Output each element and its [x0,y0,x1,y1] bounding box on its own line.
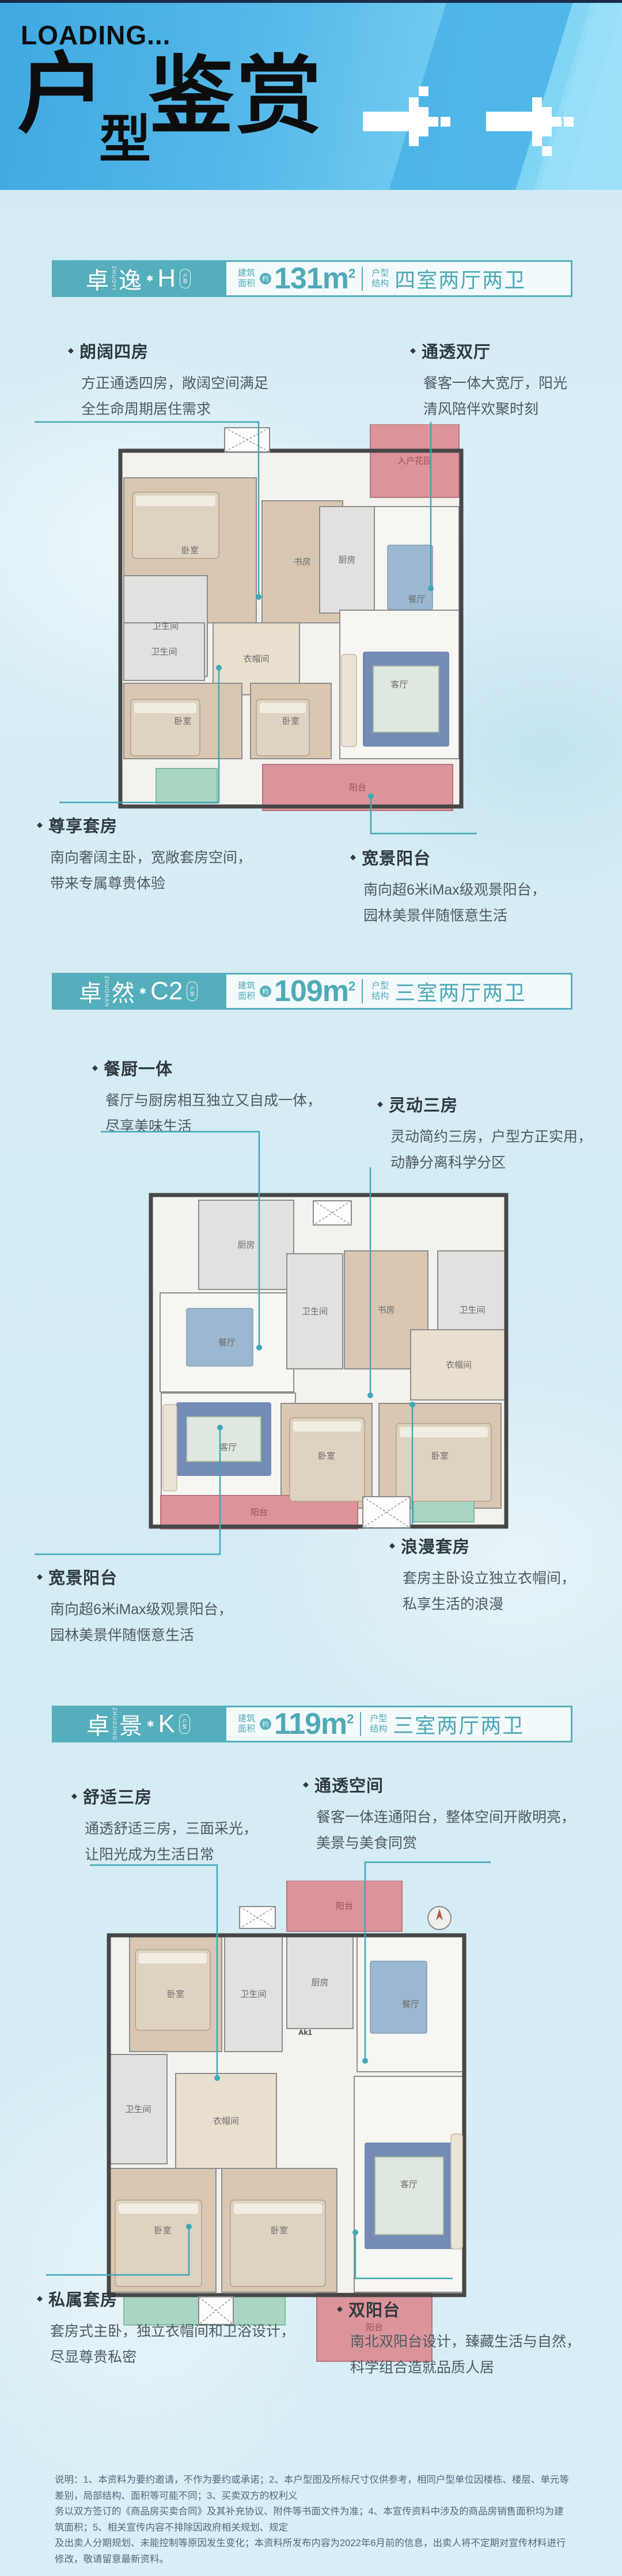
area-superscript: 2 [347,1712,353,1726]
room-label-bath-b: 卫生间 [151,647,177,657]
feature-title: 灵动三房 [389,1092,458,1116]
diamond-bullet-icon: ◆ [37,2294,43,2303]
room-label-study: 书房 [294,557,311,567]
feature-desc: 南向超6米iMax级观景阳台， 园林美景伴随惬意生活 [50,1597,233,1649]
feature-title: 双阳台 [348,2297,400,2321]
room-label-bath-b: 卫生间 [459,1306,485,1315]
room-label-dining: 餐厅 [218,1338,236,1348]
area-number: 131m [274,262,348,295]
plan-sub-label: Ak1 [298,2028,312,2037]
room-label-bath-a: 卫生间 [153,622,179,631]
area-label: 建筑 面积 [238,268,255,289]
section-header-zhuoran-c2: 卓 ZHUORAN 然 ✱ C2 户型 建筑 面积 约 109m2 户型 结构 … [52,973,572,1010]
diamond-bullet-icon: ◆ [389,1541,395,1550]
room-label-bedroom-c: 卧室 [271,2226,288,2236]
feature-title: 餐厨一体 [104,1056,173,1080]
area-superscript: 2 [348,267,355,281]
spec-divider [362,267,363,291]
diamond-bullet-icon: ◆ [337,2304,343,2314]
feature-desc: 餐客一体连通阳台，整体空间开敞明亮， 美景与美食同赏 [316,1805,575,1856]
feature-callout: ◆舒适三房 通透舒适三房，三面采光， 让阳光成为生活日常 [71,1784,257,1868]
room-label-study: 书房 [377,1306,395,1315]
area-label: 建筑 面积 [238,981,255,1002]
area-number: 119m [274,1707,347,1741]
star-separator-icon: ✱ [139,986,147,996]
room-label-dining: 餐厅 [408,595,425,604]
pillow-decor [134,703,196,713]
room-label-bath-b: 卫生间 [125,2105,151,2114]
feature-title: 尊享套房 [48,813,117,837]
room-label-closet: 衣帽间 [213,2117,239,2126]
sofa-decor [451,2134,462,2249]
brand-box: 卓 ZHUORAN 然 ✱ C2 户型 [52,973,225,1010]
feature-desc: 餐厅与厨房相互独立又自成一体， 尽享美味生活 [105,1088,321,1140]
brand-pinyin: ZHUOYI [111,266,117,291]
room-label-kitchen: 厨房 [338,555,355,565]
spec-divider [360,1712,361,1736]
header-banner: LOADING... 户 型 鉴 赏 [0,0,622,190]
brand-char: 然 [112,975,135,1008]
room-label-bath-a: 卫生间 [240,1989,266,1999]
approx-badge: 约 [260,273,271,284]
feature-callout: ◆浪漫套房 套房主卧设立独立衣帽间， 私享生活的浪漫 [389,1534,575,1618]
room-label-living: 客厅 [400,2180,418,2190]
legal-disclaimer: 说明：1、本资料为要约邀请，不作为要约或承诺；2、本户型图及所标尺寸仅供参考，相… [55,2472,573,2567]
diamond-bullet-icon: ◆ [303,1780,309,1789]
page-title-char: 户 [17,51,105,138]
structure-value: 三室两厅两卫 [395,976,526,1006]
dining-table-decor [370,1961,427,2033]
diamond-bullet-icon: ◆ [37,820,43,830]
diamond-bullet-icon: ◆ [410,346,416,355]
diamond-bullet-icon: ◆ [68,346,74,355]
floor-plan-zhuoran-c2: 厨房餐厅卫生间书房卫生间衣帽间客厅卧室卧室阳台 [149,1179,509,1535]
section-header-zhuojing-k: 卓 ZHUOJING 景 ✱ K 户型 建筑 面积 约 119m2 户型 结构 … [52,1706,572,1742]
structure-label: 户型 结构 [371,981,389,1002]
feature-desc: 南向超6米iMax级观景阳台， 园林美景伴随惬意生活 [363,877,546,929]
coffee-table-decor [373,666,439,732]
approx-badge: 约 [260,1718,271,1730]
brand-box: 卓 ZHUOYI 逸 ✱ H 户型 [52,260,225,297]
brand-box: 卓 ZHUOJING 景 ✱ K 户型 [52,1706,225,1742]
floor-plan-svg: 厨房餐厅卫生间书房卫生间衣帽间客厅卧室卧室阳台 [149,1179,509,1532]
feature-callout: ◆尊享套房 南向奢阔主卧，宽敞套房空间， 带来专属尊贵体验 [37,813,252,897]
structure-label: 户型 结构 [370,1714,387,1734]
feature-callout: ◆通透双厅 餐客一体大宽厅，阳光 清风陪伴欢聚时刻 [410,338,567,423]
diamond-bullet-icon: ◆ [37,1572,43,1581]
brand-pinyin: ZHUOJING [112,1707,117,1741]
brand-pinyin: ZHUORAN [104,976,110,1007]
room-label-bedroom-a: 卧室 [167,1989,184,1999]
room-label-bath-a: 卫生间 [302,1307,328,1316]
feature-title: 舒适三房 [83,1784,152,1808]
area-superscript: 2 [348,979,355,994]
coffee-table-decor [187,1417,261,1462]
feature-callout: ◆宽景阳台 南向超6米iMax级观景阳台， 园林美景伴随惬意生活 [350,845,546,929]
structure-label: 户型 结构 [371,268,389,289]
brand-char: 卓 [86,262,109,295]
diamond-bullet-icon: ◆ [350,853,356,862]
model-letter: H [157,264,176,293]
dining-table-decor [187,1308,253,1366]
room-label-living: 客厅 [219,1443,237,1452]
feature-callout: ◆餐厨一体 餐厅与厨房相互独立又自成一体， 尽享美味生活 [92,1056,321,1140]
spec-box: 建筑 面积 约 119m2 户型 结构 三室两厅两卫 [225,1706,572,1742]
feature-desc: 通透舒适三房，三面采光， 让阳光成为生活日常 [85,1816,257,1868]
room-planter [156,768,217,803]
model-type-badge: 户型 [187,981,198,1001]
pillow-decor [293,1421,361,1432]
section-header-zhuoyi-h: 卓 ZHUOYI 逸 ✱ H 户型 建筑 面积 约 131m2 户型 结构 四室… [52,260,572,297]
feature-callout: ◆私属套房 套房式主卧，独立衣帽间和卫浴设计， 尽显尊贵私密 [37,2286,295,2370]
feature-desc: 方正通透四房，敞阔空间满足 全生命周期居住需求 [81,371,268,423]
pillow-decor [119,2204,198,2214]
brand-char: 卓 [79,975,103,1008]
pillow-decor [234,2204,322,2214]
diamond-bullet-icon: ◆ [71,1791,77,1801]
feature-callout: ◆通透空间 餐客一体连通阳台，整体空间开敞明亮， 美景与美食同赏 [303,1772,575,1856]
sofa-decor [163,1405,177,1491]
room-label-bedroom-a: 卧室 [181,546,199,555]
room-label-bedroom-b: 卧室 [431,1451,449,1461]
area-value: 131m2 [274,261,355,296]
feature-callout: ◆灵动三房 灵动简约三房，户型方正实用， 动静分离科学分区 [377,1092,592,1176]
diamond-bullet-icon: ◆ [92,1063,98,1072]
pillow-decor [136,496,215,506]
feature-callout: ◆宽景阳台 南向超6米iMax级观景阳台， 园林美景伴随惬意生活 [37,1565,233,1649]
page-title-char: 型 [99,114,151,166]
spec-box: 建筑 面积 约 131m2 户型 结构 四室两厅两卫 [225,260,572,297]
feature-title: 通透空间 [314,1772,384,1797]
star-separator-icon: ✱ [146,273,154,284]
pillow-decor [400,1427,488,1437]
room-label-bedroom-b: 卧室 [154,2226,171,2236]
floor-plan-svg: 入户花园卧室书房厨房餐厅卫生间卫生间衣帽间卧室卧室客厅阳台 [118,424,464,815]
area-number: 109m [274,975,348,1008]
sofa-decor [342,655,356,747]
feature-title: 浪漫套房 [401,1534,470,1558]
area-value: 119m2 [274,1707,353,1741]
pillow-decor [139,1953,207,1964]
brand-char: 逸 [119,262,142,295]
feature-title: 通透双厅 [422,338,491,363]
diamond-bullet-icon: ◆ [377,1099,383,1109]
poster-page: LOADING... 户 型 鉴 赏 卓 ZHUOYI 逸 ✱ H 户型 建筑 … [0,0,622,2576]
room-label-kitchen: 厨房 [237,1241,255,1250]
room-label-closet: 衣帽间 [446,1360,472,1370]
room-label-balcony: 阳台 [349,783,366,793]
page-title-char: 鉴 [149,54,234,139]
room-label-entry-garden: 入户花园 [397,456,432,466]
room-label-kitchen: 厨房 [311,1978,328,1988]
model-type-badge: 户型 [179,1714,190,1734]
room-label-bedroom-a: 卧室 [318,1451,335,1461]
pillow-decor [260,703,306,713]
feature-callout: ◆双阳台 南北双阳台设计，臻藏生活与自然， 科学组合造就品质人居 [337,2297,581,2381]
area-label: 建筑 面积 [238,1714,255,1734]
floor-plan-zhuoyi-h: 入户花园卧室书房厨房餐厅卫生间卫生间衣帽间卧室卧室客厅阳台 [118,424,464,817]
pixel-arrow-icon [363,85,455,159]
model-letter: K [158,1710,175,1738]
feature-callout: ◆朗阔四房 方正通透四房，敞阔空间满足 全生命周期居住需求 [68,338,268,423]
room-label-balcony-north: 阳台 [336,1901,353,1911]
room-label-living: 客厅 [390,680,408,690]
feature-title: 私属套房 [48,2286,117,2311]
room-label-bedroom-c: 卧室 [282,717,299,726]
room-label-closet: 衣帽间 [243,655,269,664]
feature-desc: 南向奢阔主卧，宽敞套房空间， 带来专属尊贵体验 [50,845,252,897]
approx-badge: 约 [260,985,271,997]
room-label-bedroom-b: 卧室 [174,717,191,726]
area-value: 109m2 [274,974,355,1009]
coffee-table-decor [375,2157,443,2235]
feature-desc: 南北双阳台设计，臻藏生活与自然， 科学组合造就品质人居 [350,2329,581,2381]
feature-desc: 套房主卧设立独立衣帽间， 私享生活的浪漫 [403,1566,575,1618]
room-label-dining: 餐厅 [402,2000,419,2010]
feature-title: 宽景阳台 [48,1565,117,1589]
model-type-badge: 户型 [180,269,191,288]
feature-desc: 套房式主卧，独立衣帽间和卫浴设计， 尽显尊贵私密 [50,2319,295,2370]
structure-value: 三室两厅两卫 [393,1709,524,1739]
page-title-char: 赏 [236,54,321,139]
spec-divider [362,979,363,1003]
feature-desc: 餐客一体大宽厅，阳光 清风陪伴欢聚时刻 [423,371,567,423]
brand-char: 景 [119,1707,143,1741]
feature-title: 朗阔四房 [79,338,149,363]
star-separator-icon: ✱ [147,1719,154,1729]
feature-title: 宽景阳台 [362,845,431,869]
spec-box: 建筑 面积 约 109m2 户型 结构 三室两厅两卫 [225,973,572,1010]
room-label-balcony: 阳台 [251,1508,268,1517]
feature-desc: 灵动简约三房，户型方正实用， 动静分离科学分区 [390,1124,592,1176]
brand-char: 卓 [86,1707,110,1741]
model-letter: C2 [150,977,183,1006]
structure-value: 四室两厅两卫 [395,264,526,294]
pixel-arrow-icon [486,85,578,159]
top-accent-bar [0,0,622,3]
